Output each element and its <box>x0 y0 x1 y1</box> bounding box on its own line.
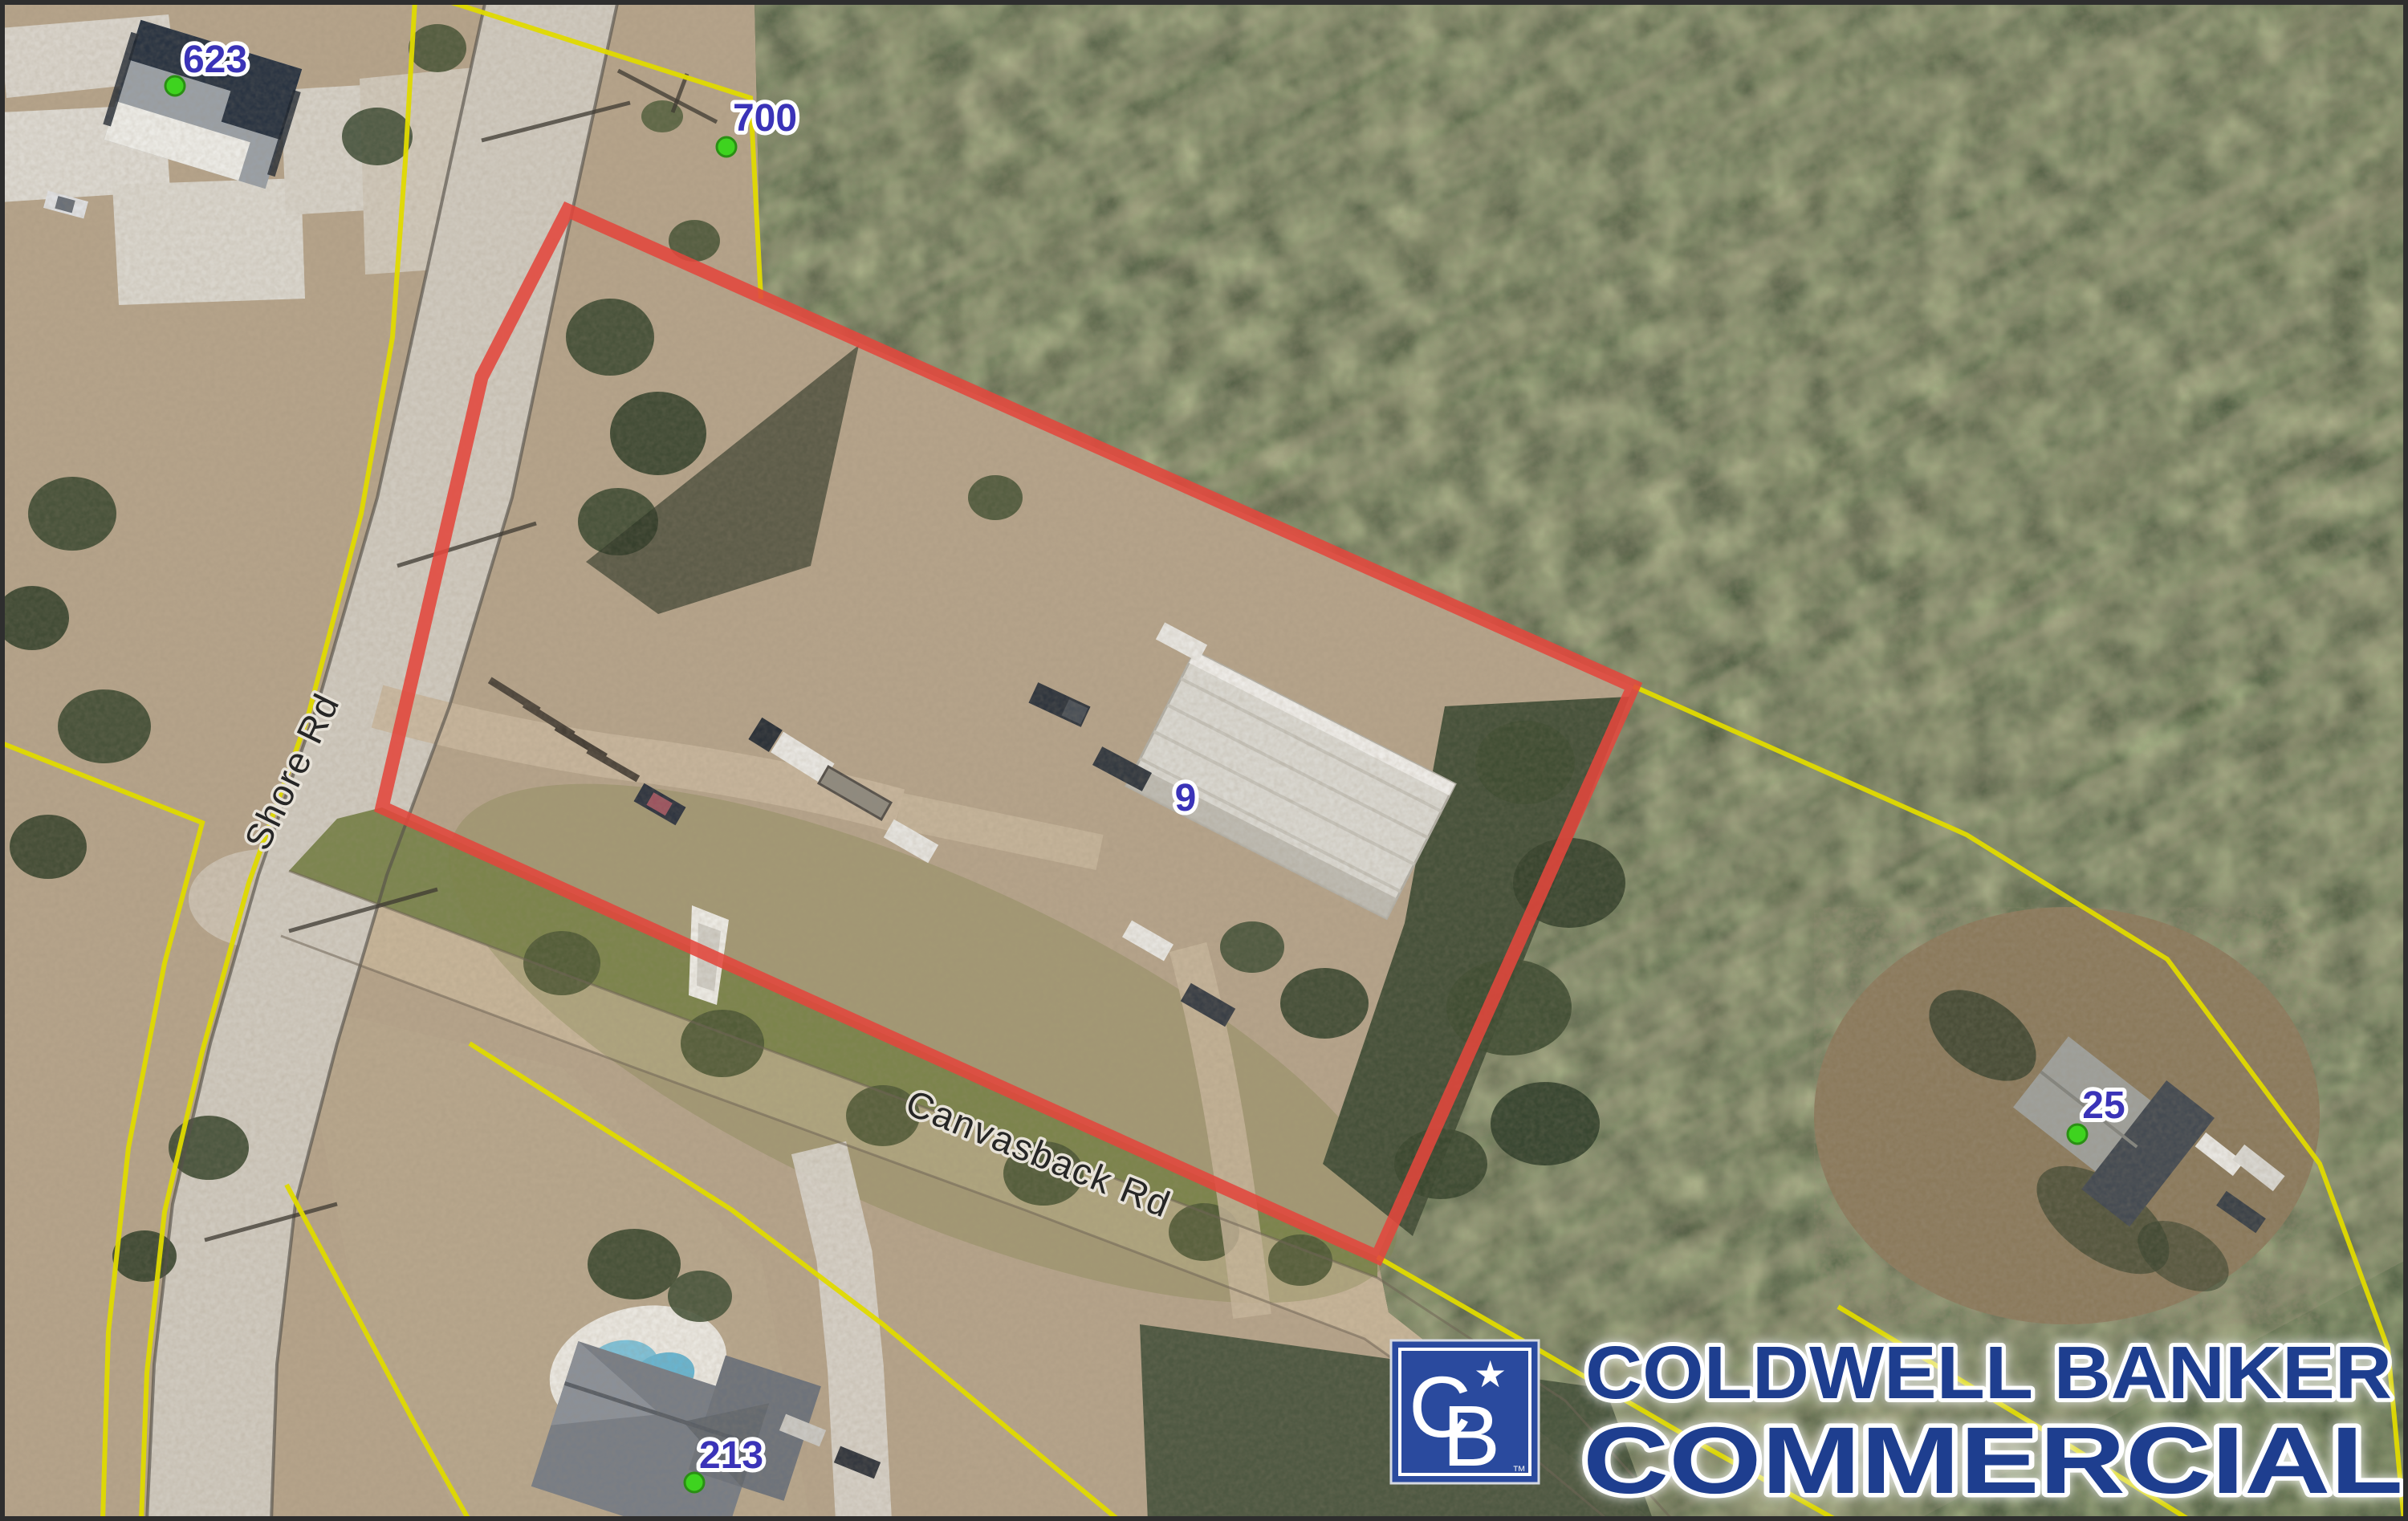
parcel-label-9: 9 <box>1175 777 1197 819</box>
logo-line1: COLDWELL BANKER <box>1585 1331 2392 1414</box>
parcel-marker-25 <box>2068 1124 2087 1144</box>
parcel-marker-623 <box>165 76 185 96</box>
parcel-label-25: 25 <box>2082 1084 2125 1127</box>
aerial-map-figure: Shore Rd Canvasback Rd 623 700 9 25 213 … <box>0 0 2408 1521</box>
parcel-marker-700 <box>717 137 736 157</box>
parcel-label-700: 700 <box>733 97 797 140</box>
logo-trademark: ™ <box>1512 1463 1526 1478</box>
cb-logo-mark: ★ C B ™ <box>1391 1340 1539 1484</box>
aerial-map: Shore Rd Canvasback Rd 623 700 9 25 213 … <box>0 0 2408 1521</box>
parcel-label-623: 623 <box>183 39 247 81</box>
cb-logo-text: COLDWELL BANKER COMMERCIAL COLDWELL BANK… <box>1583 1331 2403 1514</box>
parcel-label-213: 213 <box>699 1434 763 1477</box>
grain-overlay <box>0 0 2408 1521</box>
logo-monogram-b: B <box>1442 1387 1500 1484</box>
logo-line2: COMMERCIAL <box>1583 1408 2403 1514</box>
